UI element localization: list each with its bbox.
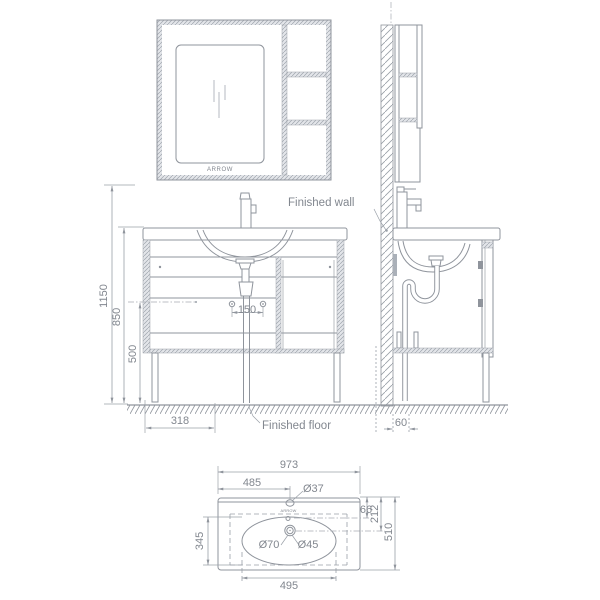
technical-drawing-vanity: ARROW [0, 0, 600, 600]
bottom-rail [150, 349, 344, 353]
brand-logo-text: ARROW [207, 167, 233, 173]
dim-drain-wall-offset: 60 [384, 414, 418, 433]
dim-label: 60 [395, 417, 407, 429]
leader-dot [385, 229, 388, 232]
dim-label: 212 [369, 505, 381, 523]
drain-nut [431, 260, 441, 266]
dim-label: 973 [280, 459, 298, 471]
shelf [287, 120, 326, 125]
rear-post [414, 332, 418, 348]
vanity-front [128, 193, 347, 403]
dim-counter-height: 850 [111, 227, 144, 403]
dim-label: Ø37 [303, 483, 324, 495]
centerline-dot [195, 301, 197, 303]
cabinet-divider [276, 257, 281, 353]
side-panel [482, 240, 493, 357]
vanity-side [393, 228, 500, 402]
dim-label: Ø45 [298, 539, 319, 551]
finished-wall-section [381, 2, 393, 406]
drawing-canvas: ARROW [0, 0, 600, 600]
dim-drain-depth: 212 [369, 497, 381, 531]
mirror-cabinet-front: ARROW [157, 20, 331, 180]
countertop-front [143, 228, 347, 240]
dim-inlet-height: 500 [127, 303, 140, 403]
mirror-cabinet-interior [162, 25, 326, 175]
drain-front [236, 259, 254, 403]
leg [334, 353, 340, 402]
countertop-side [393, 228, 500, 240]
cabinet-side-door [417, 25, 422, 128]
finished-wall-callout: Finished wall [288, 197, 388, 232]
top-bracket [482, 242, 493, 248]
dim-label: 485 [243, 477, 261, 489]
wall-hatch [381, 25, 393, 406]
dim-faucet-center: 485 [218, 477, 290, 500]
handle-dot [159, 266, 161, 268]
dim-label: 1150 [98, 284, 110, 308]
hinge [478, 299, 483, 307]
dim-label: 150 [238, 304, 256, 316]
leg [152, 353, 158, 402]
hinge [478, 261, 483, 269]
bottom-rail [393, 348, 493, 353]
handle-dot [329, 266, 331, 268]
p-trap [405, 266, 437, 401]
dim-label: 500 [127, 345, 139, 363]
dim-label: 850 [111, 308, 123, 326]
shelf [399, 118, 417, 122]
mirror-cabinet-side [395, 25, 422, 182]
shelf [287, 72, 326, 77]
shelf [399, 73, 417, 77]
dim-total-height: 1150 [98, 185, 135, 404]
faucet-side [397, 187, 421, 228]
plan-view: ARROW Ø70 Ø45 973 485 Ø37 [194, 459, 400, 592]
finished-wall-label: Finished wall [288, 197, 354, 209]
rear-post [397, 332, 401, 348]
dim-label: 510 [383, 523, 395, 541]
brand-logo-text: ARROW [281, 508, 297, 513]
wall-bracket [393, 254, 397, 276]
cabinet-divider [282, 25, 287, 175]
leg [483, 353, 489, 402]
finished-floor-label: Finished floor [262, 420, 331, 432]
cabinet-post-left [143, 240, 150, 353]
floor-hatch [127, 406, 508, 415]
dim-label: 345 [194, 532, 206, 550]
dim-label: 495 [280, 580, 298, 592]
dim-hole-spacing: 150 [232, 304, 263, 317]
cabinet-post-right [337, 240, 344, 353]
drain-flange [429, 256, 443, 260]
faucet-front [240, 193, 256, 228]
drain-hole [285, 525, 295, 535]
dim-label: Ø70 [259, 539, 280, 551]
dim-total-depth: 510 [383, 497, 395, 570]
dim-label: 318 [171, 415, 189, 427]
